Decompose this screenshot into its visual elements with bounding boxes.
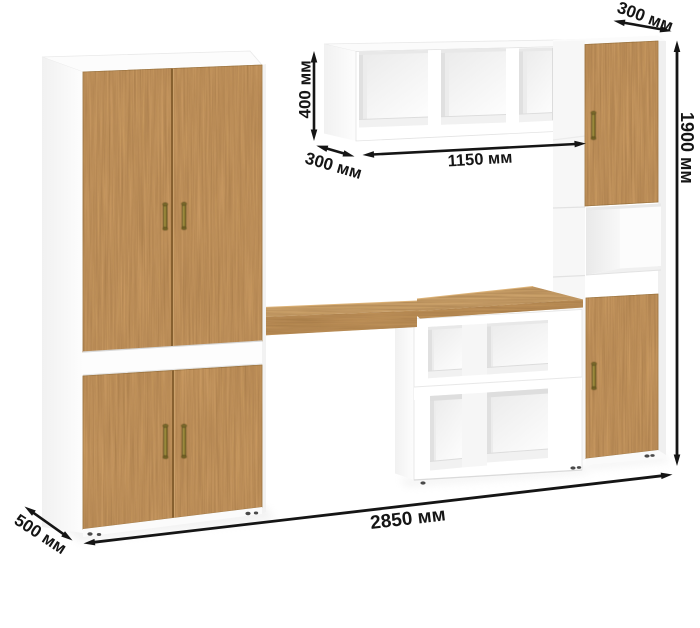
svg-text:400 мм: 400 мм: [296, 60, 315, 118]
svg-text:1900 мм: 1900 мм: [677, 112, 697, 184]
